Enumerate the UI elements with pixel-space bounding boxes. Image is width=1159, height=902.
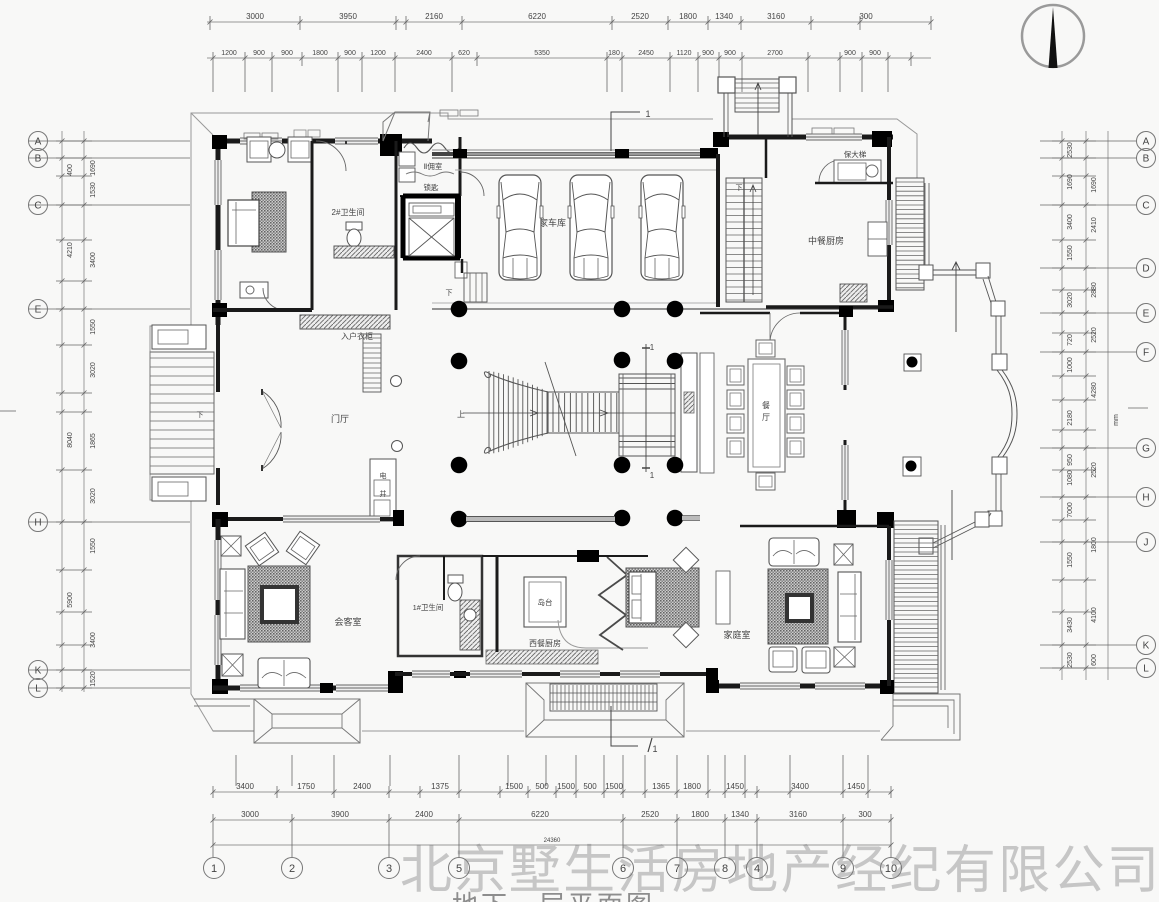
svg-text:2520: 2520 [631,12,649,21]
svg-text:3160: 3160 [789,810,807,819]
svg-text:1200: 1200 [221,50,237,57]
svg-text:900: 900 [344,50,356,57]
svg-text:6: 6 [620,863,626,875]
svg-text:3400: 3400 [90,252,97,268]
svg-text:400: 400 [67,164,74,176]
svg-text:1: 1 [650,471,655,480]
svg-text:2160: 2160 [425,12,443,21]
svg-text:3000: 3000 [241,810,259,819]
svg-text:1500: 1500 [505,782,523,791]
svg-text:1800: 1800 [679,12,697,21]
svg-text:500: 500 [535,782,549,791]
svg-text:3020: 3020 [90,488,97,504]
svg-text:1450: 1450 [726,782,744,791]
svg-text:3430: 3430 [1067,617,1074,633]
svg-text:H: H [1142,493,1149,504]
svg-text:3900: 3900 [331,810,349,819]
svg-text:5350: 5350 [534,50,550,57]
svg-text:10: 10 [885,863,897,875]
svg-text:岛台: 岛台 [538,597,553,607]
svg-text:1500: 1500 [557,782,575,791]
svg-text:入户衣柜: 入户衣柜 [341,331,373,341]
svg-text:K: K [1143,641,1150,652]
svg-text:Ⅱ佣室: Ⅱ佣室 [424,161,443,171]
svg-text:3400: 3400 [1067,214,1074,230]
svg-text:井: 井 [380,489,387,498]
svg-text:锁匙: 锁匙 [424,182,439,192]
svg-text:下: 下 [446,289,453,297]
svg-text:1550: 1550 [1067,552,1074,568]
svg-text:1000: 1000 [1067,357,1074,373]
svg-text:900: 900 [869,50,881,57]
svg-text:家庭室: 家庭室 [723,629,750,640]
svg-text:中餐厨房: 中餐厨房 [808,235,844,246]
svg-text:1080: 1080 [1067,470,1074,486]
svg-text:1690: 1690 [90,160,97,176]
svg-text:K: K [35,666,42,677]
svg-text:2520: 2520 [1091,327,1098,343]
svg-text:1450: 1450 [847,782,865,791]
svg-text:1375: 1375 [431,782,449,791]
svg-text:L: L [1143,664,1149,675]
svg-text:地下一层平面图: 地下一层平面图 [452,890,655,902]
svg-text:3160: 3160 [767,12,785,21]
svg-text:1340: 1340 [715,12,733,21]
svg-text:2700: 2700 [767,50,783,57]
svg-text:餐: 餐 [762,401,770,410]
svg-text:1120: 1120 [676,50,691,57]
svg-text:900: 900 [724,50,736,57]
svg-text:G: G [1142,444,1150,455]
svg-text:1750: 1750 [297,782,315,791]
svg-text:950: 950 [1067,454,1074,466]
svg-text:2#卫生间: 2#卫生间 [332,207,365,217]
svg-text:7000: 7000 [1067,502,1074,518]
svg-text:2400: 2400 [416,50,432,57]
svg-text:2520: 2520 [1091,462,1098,478]
svg-text:5: 5 [456,863,462,875]
svg-text:3950: 3950 [339,12,357,21]
svg-text:E: E [35,305,42,316]
svg-text:3020: 3020 [1067,292,1074,308]
svg-text:会客室: 会客室 [334,616,361,627]
svg-text:8: 8 [722,863,728,875]
svg-text:24360: 24360 [544,838,561,844]
svg-text:3400: 3400 [791,782,809,791]
svg-text:1: 1 [645,109,650,119]
svg-text:4100: 4100 [1091,607,1098,623]
svg-text:1800: 1800 [691,810,709,819]
svg-text:1: 1 [650,343,655,352]
svg-text:8040: 8040 [67,432,74,448]
svg-text:1800: 1800 [312,50,328,57]
svg-text:1690: 1690 [1091,177,1098,193]
svg-text:3000: 3000 [246,12,264,21]
svg-text:1#卫生间: 1#卫生间 [413,602,444,612]
svg-text:C: C [34,201,41,212]
svg-text:1520: 1520 [90,671,97,687]
svg-text:J: J [1144,538,1149,549]
svg-text:H: H [34,518,41,529]
svg-text:1800: 1800 [1091,537,1098,553]
svg-text:1550: 1550 [90,538,97,554]
svg-text:300: 300 [859,12,873,21]
svg-text:门厅: 门厅 [331,413,349,424]
svg-text:900: 900 [702,50,714,57]
svg-text:A: A [35,137,42,148]
svg-text:3: 3 [386,863,392,875]
svg-text:3400: 3400 [236,782,254,791]
svg-text:下: 下 [197,411,204,419]
svg-text:4280: 4280 [1091,382,1098,398]
svg-text:1550: 1550 [1067,245,1074,261]
svg-text:2520: 2520 [641,810,659,819]
svg-text:2450: 2450 [638,50,654,57]
svg-text:mm: mm [1113,414,1120,426]
svg-text:L: L [35,684,41,695]
svg-text:西餐厨房: 西餐厨房 [529,638,561,648]
svg-text:保大梯: 保大梯 [844,149,867,159]
svg-text:2400: 2400 [353,782,371,791]
svg-text:2880: 2880 [1091,282,1098,298]
svg-text:7: 7 [674,863,680,875]
svg-text:9: 9 [840,863,846,875]
svg-text:B: B [35,154,42,165]
svg-text:2530: 2530 [1067,142,1074,158]
svg-text:620: 620 [458,50,470,57]
svg-text:2410: 2410 [1091,217,1098,233]
svg-text:900: 900 [281,50,293,57]
svg-text:2180: 2180 [1067,410,1074,426]
svg-text:电: 电 [380,471,387,480]
svg-text:2: 2 [289,863,295,875]
svg-text:900: 900 [844,50,856,57]
svg-text:720: 720 [1067,334,1074,346]
svg-text:2530: 2530 [1067,652,1074,668]
svg-text:B: B [1143,154,1150,165]
svg-text:厅: 厅 [762,413,770,422]
svg-text:4: 4 [754,863,760,875]
svg-text:A: A [1143,137,1150,148]
svg-text:1530: 1530 [90,182,97,198]
svg-text:上: 上 [457,410,465,419]
svg-text:1690: 1690 [1067,174,1074,190]
svg-text:1800: 1800 [683,782,701,791]
svg-text:2400: 2400 [415,810,433,819]
svg-text:E: E [1143,309,1150,320]
svg-text:3400: 3400 [90,632,97,648]
svg-text:1200: 1200 [370,50,386,57]
svg-text:1500: 1500 [605,782,623,791]
svg-text:6220: 6220 [531,810,549,819]
svg-text:6220: 6220 [528,12,546,21]
svg-text:1865: 1865 [90,433,97,449]
svg-text:1: 1 [211,863,217,875]
svg-text:300: 300 [858,810,872,819]
svg-text:D: D [1142,264,1149,275]
svg-text:4210: 4210 [67,242,74,258]
svg-text:500: 500 [583,782,597,791]
svg-text:5900: 5900 [67,592,74,608]
svg-text:下: 下 [736,184,743,192]
svg-text:180: 180 [608,50,620,57]
svg-text:900: 900 [253,50,265,57]
svg-text:3020: 3020 [90,362,97,378]
svg-text:1: 1 [652,744,657,754]
svg-text:F: F [1143,348,1149,359]
svg-text:1365: 1365 [652,782,670,791]
svg-text:C: C [1142,201,1149,212]
svg-text:1340: 1340 [731,810,749,819]
svg-text:600: 600 [1091,654,1098,666]
svg-text:1550: 1550 [90,319,97,335]
